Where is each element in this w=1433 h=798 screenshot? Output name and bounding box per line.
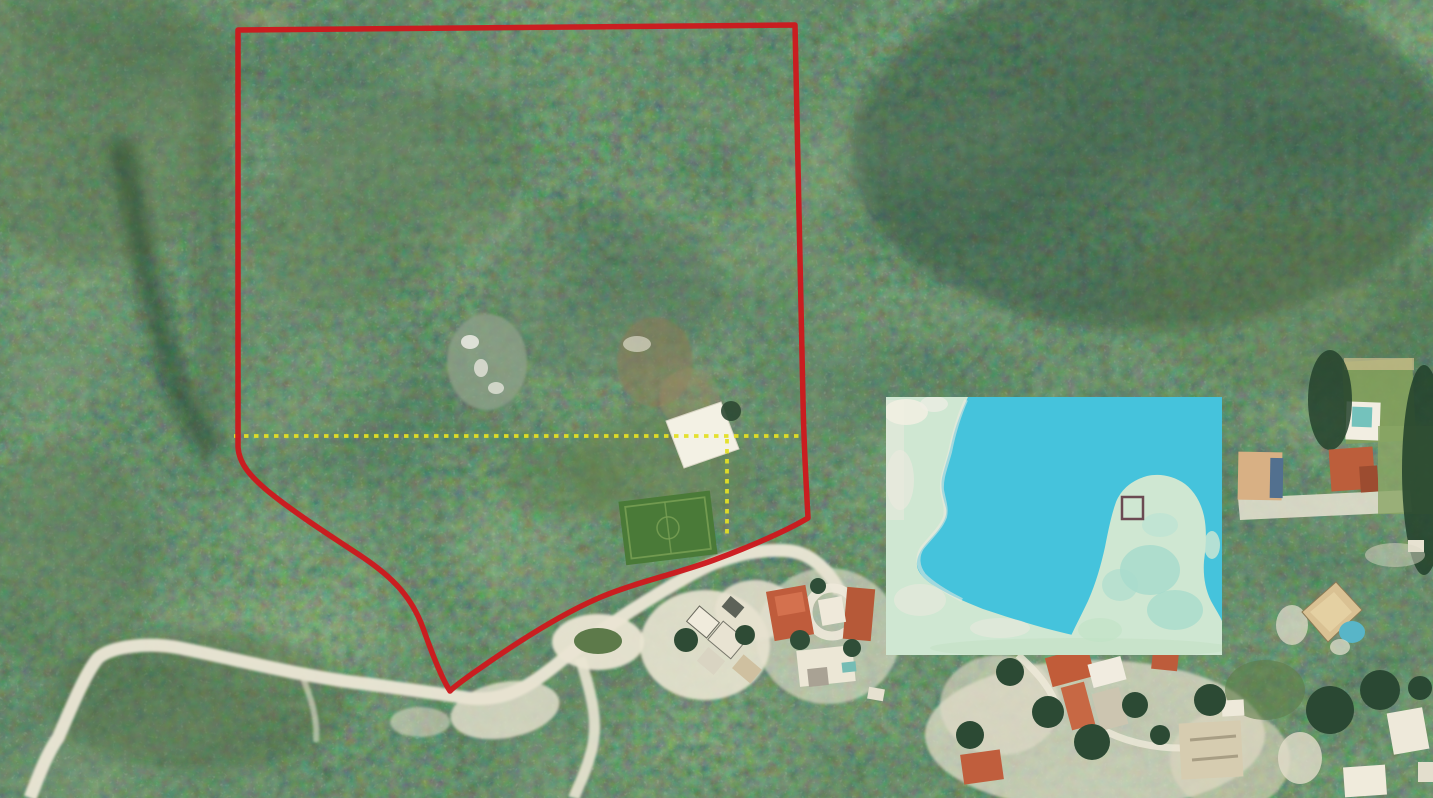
aerial-scene <box>0 0 1433 798</box>
buildings-bottom-center <box>925 647 1305 798</box>
inset-locator-map <box>884 396 1230 658</box>
buildings-south <box>756 568 900 704</box>
sports-field <box>618 491 717 566</box>
roundabout-island <box>574 628 622 654</box>
aerial-map-view <box>0 0 1433 798</box>
